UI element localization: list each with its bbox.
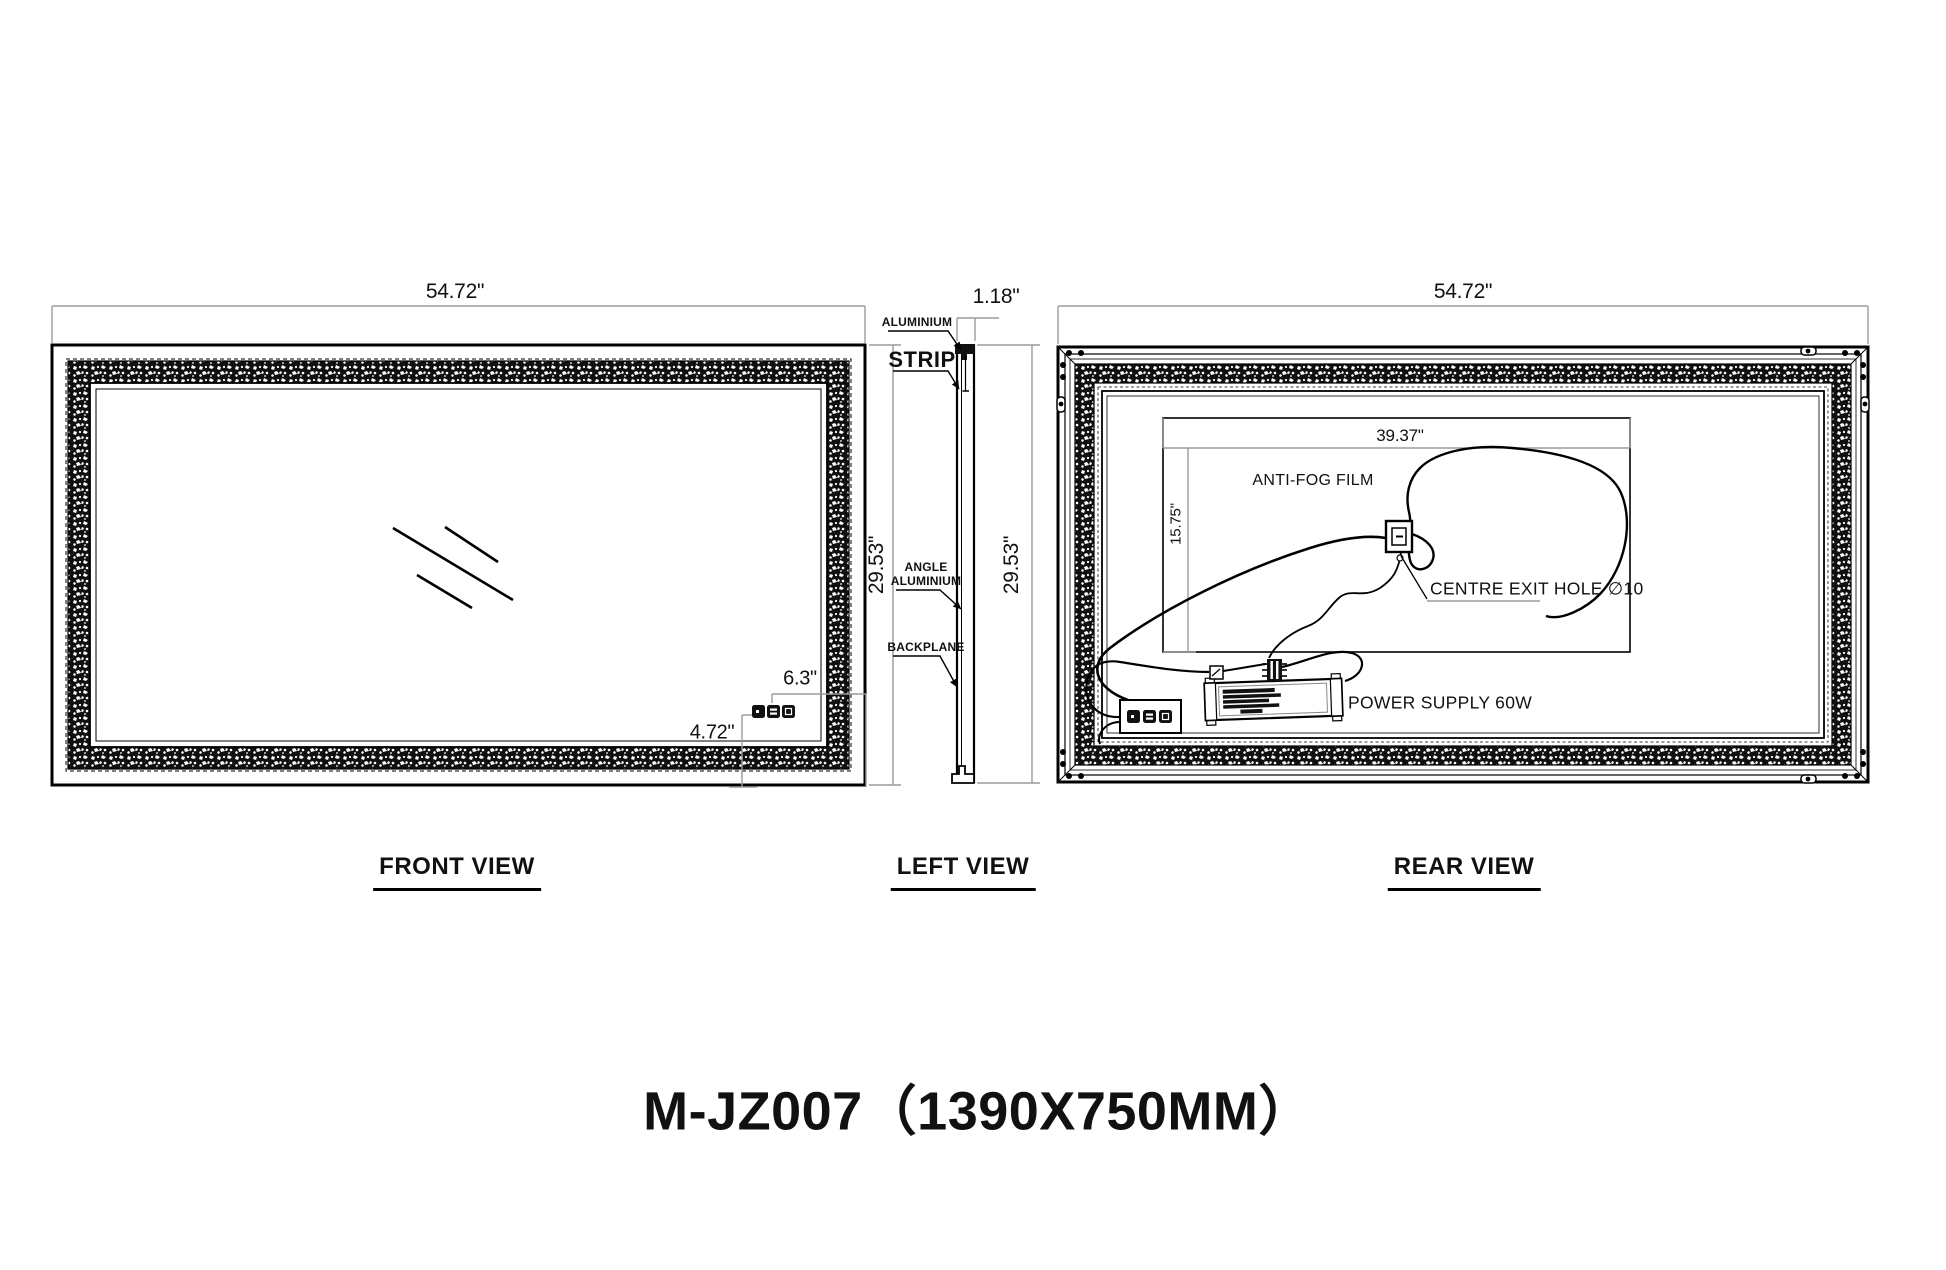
left-strip-profile bbox=[952, 344, 975, 783]
backplane-callout: BACKPLANE bbox=[887, 640, 964, 654]
rear-width-dimension: 54.72" bbox=[1434, 280, 1492, 304]
front-touch-buttons bbox=[752, 705, 795, 718]
front-sensor-bottom-dimension: 4.72" bbox=[690, 722, 735, 745]
power-supply-callout: POWER SUPPLY 60W bbox=[1348, 693, 1532, 714]
strip-callout: STRIP bbox=[888, 347, 955, 373]
front-height-dimension: 29.53" bbox=[865, 536, 889, 594]
film-width-dimension: 39.37" bbox=[1376, 426, 1423, 446]
front-sensor-right-dimension: 6.3" bbox=[783, 668, 817, 691]
front-view-drawing bbox=[52, 306, 901, 787]
centre-exit-hole-callout: CENTRE EXIT HOLE ∅10 bbox=[1430, 579, 1643, 600]
rear-dimension-lines bbox=[1058, 306, 1868, 344]
angle-aluminium-callout-line2: ALUMINIUM bbox=[891, 574, 961, 588]
rear-touch-switch-box bbox=[1120, 700, 1181, 733]
left-callout-leaders bbox=[888, 331, 961, 687]
technical-drawing-canvas: 54.72" 29.53" 6.3" 4.72" 1.18" 29.53" AL… bbox=[0, 0, 1946, 1270]
film-height-dimension: 15.75" bbox=[1168, 503, 1185, 545]
left-dimension-lines bbox=[957, 318, 1040, 783]
anti-fog-film-callout: ANTI-FOG FILM bbox=[1252, 472, 1373, 490]
left-view-label: LEFT VIEW bbox=[891, 853, 1036, 891]
front-view-label: FRONT VIEW bbox=[373, 853, 541, 891]
rear-view-label: REAR VIEW bbox=[1388, 853, 1541, 891]
product-title: M-JZ007（1390X750MM） bbox=[643, 1067, 1313, 1146]
front-crystal-band bbox=[66, 359, 851, 771]
angle-aluminium-callout-line1: ANGLE bbox=[905, 560, 948, 574]
inline-connector bbox=[1210, 666, 1223, 679]
left-height-dimension: 29.53" bbox=[1000, 536, 1024, 594]
left-thickness-dimension: 1.18" bbox=[973, 285, 1020, 309]
front-width-dimension: 54.72" bbox=[426, 280, 484, 304]
aluminium-callout: ALUMINIUM bbox=[882, 315, 952, 329]
